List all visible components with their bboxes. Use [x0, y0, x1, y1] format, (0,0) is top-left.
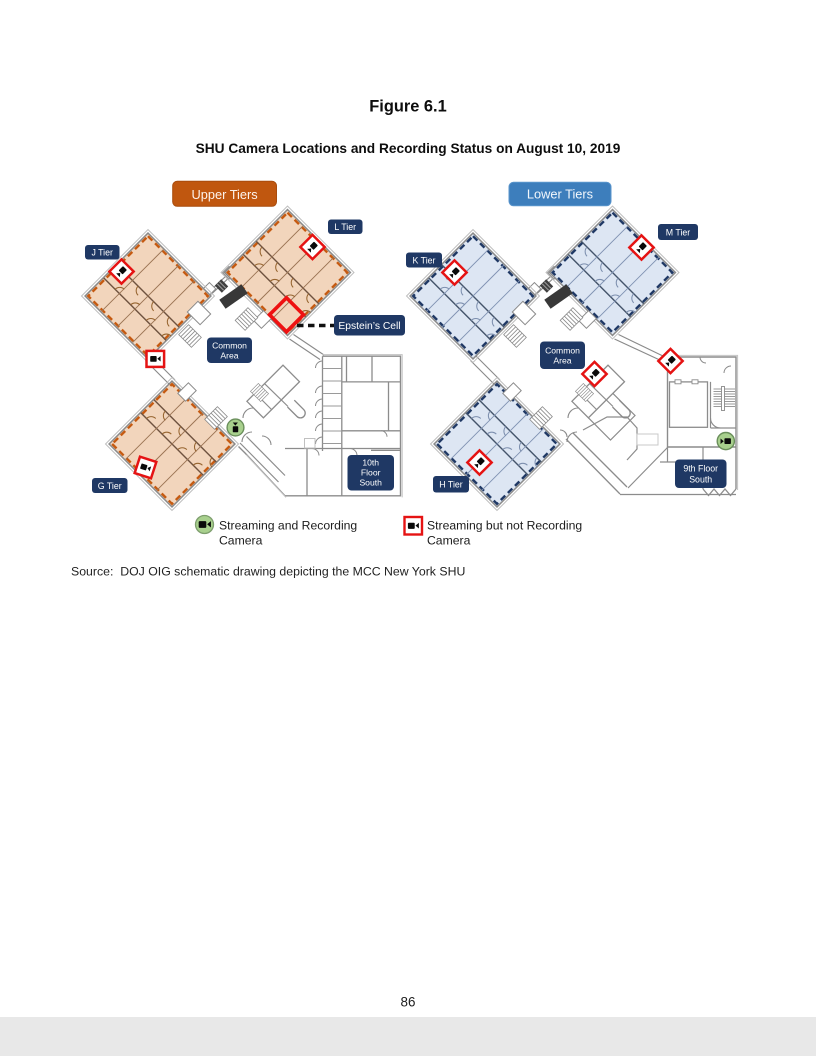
svg-text:Area: Area [553, 356, 571, 366]
svg-text:86: 86 [401, 995, 416, 1010]
svg-text:Figure 6.1: Figure 6.1 [369, 98, 446, 116]
svg-text:SHU Camera Locations and Recor: SHU Camera Locations and Recording Statu… [196, 141, 621, 156]
svg-text:Upper Tiers: Upper Tiers [192, 187, 258, 202]
svg-text:G Tier: G Tier [98, 481, 122, 491]
svg-text:M Tier: M Tier [666, 227, 691, 237]
svg-text:South: South [689, 475, 712, 485]
svg-text:K Tier: K Tier [413, 255, 436, 265]
svg-text:Common: Common [212, 341, 247, 351]
svg-text:Streaming but not Recording: Streaming but not Recording [427, 519, 582, 533]
svg-text:H Tier: H Tier [439, 480, 463, 490]
svg-text:Area: Area [220, 351, 238, 361]
svg-text:9th Floor: 9th Floor [683, 464, 718, 474]
svg-text:Lower Tiers: Lower Tiers [527, 187, 593, 202]
svg-text:Camera: Camera [427, 534, 471, 548]
svg-text:Epstein’s Cell: Epstein’s Cell [338, 321, 400, 332]
svg-text:South: South [359, 478, 382, 488]
svg-text:L Tier: L Tier [334, 222, 356, 232]
svg-text:Source: DOJ OIG schematic dra: Source: DOJ OIG schematic drawing depict… [71, 565, 465, 579]
svg-text:10th: 10th [362, 458, 379, 468]
svg-text:Camera: Camera [219, 534, 263, 548]
svg-text:Floor: Floor [361, 468, 381, 478]
svg-text:J Tier: J Tier [91, 248, 113, 258]
svg-text:Common: Common [545, 346, 580, 356]
svg-text:Streaming and Recording: Streaming and Recording [219, 519, 357, 533]
